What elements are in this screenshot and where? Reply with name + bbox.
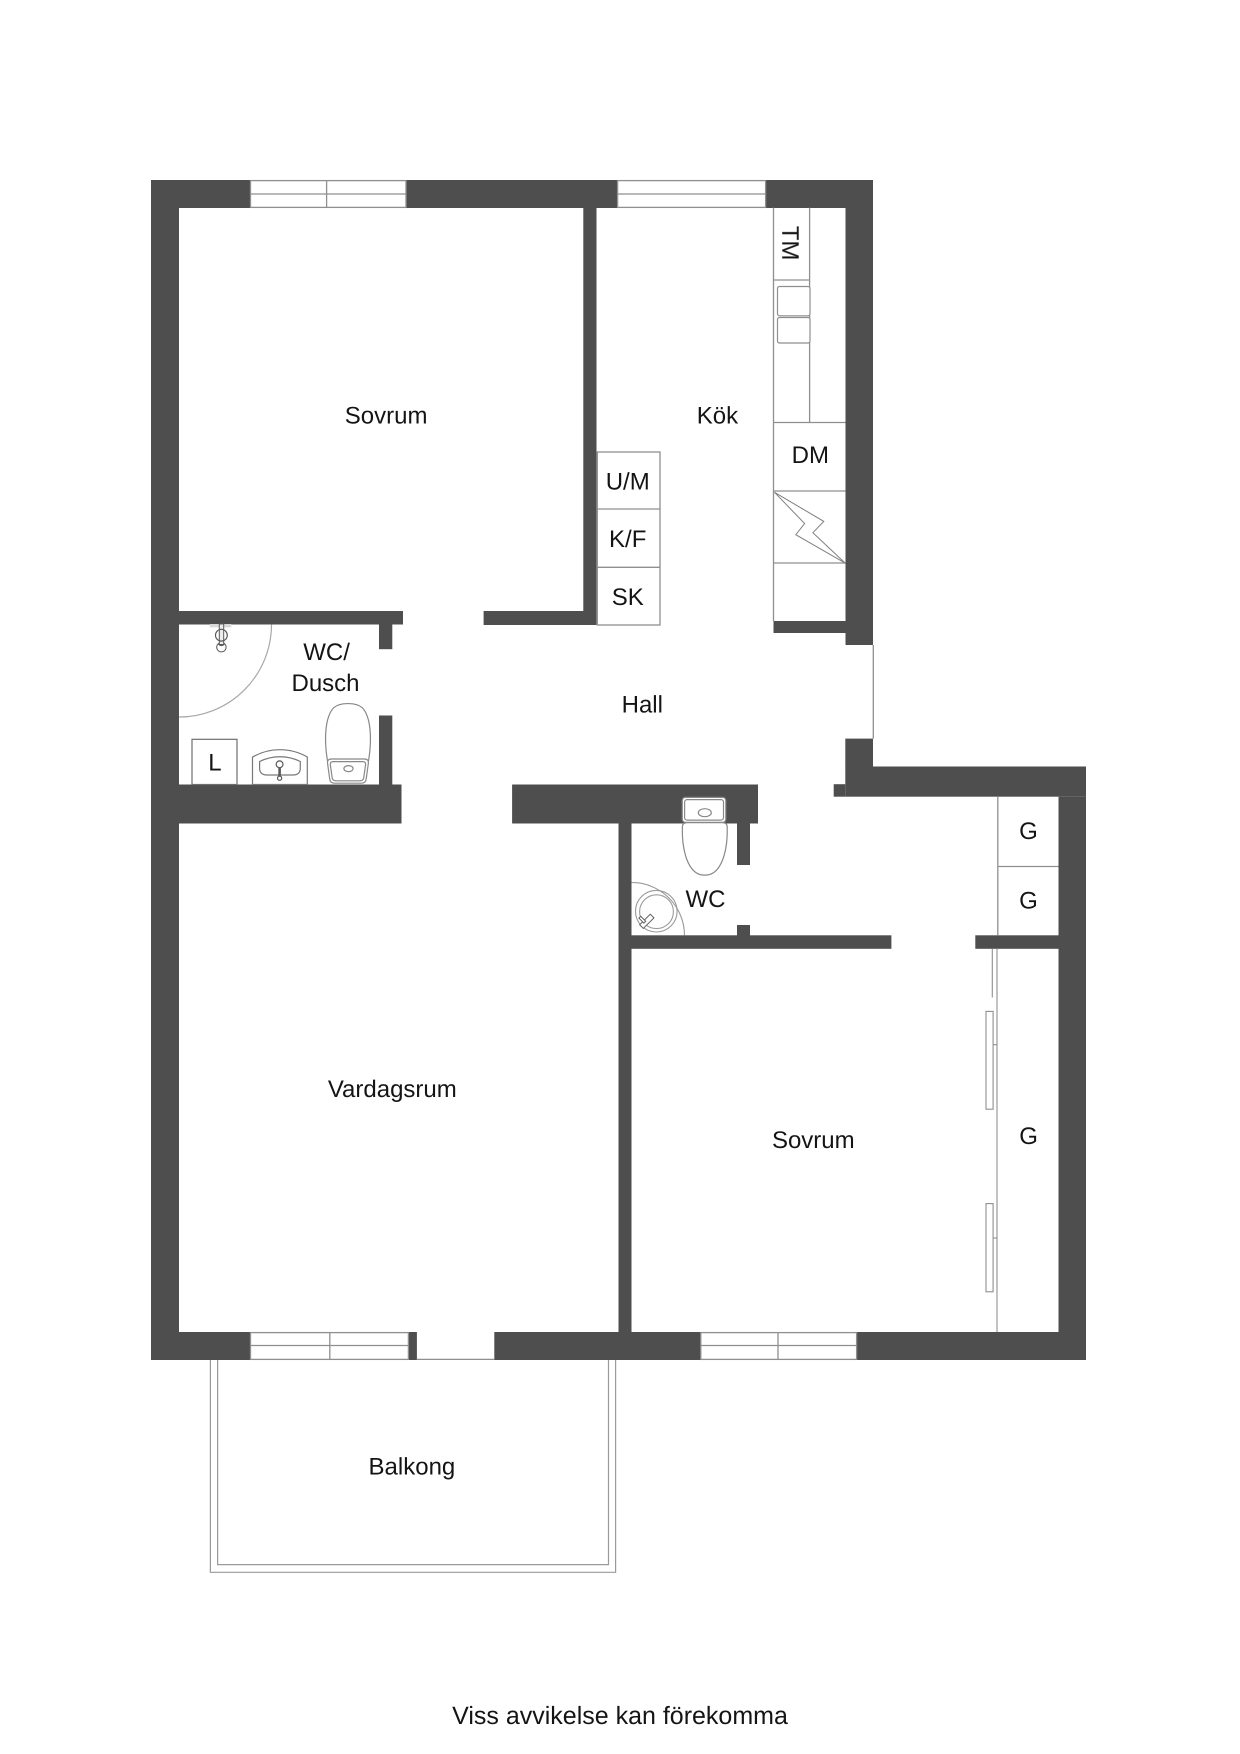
svg-text:WC: WC — [686, 886, 726, 913]
svg-text:L: L — [208, 750, 221, 777]
svg-text:SK: SK — [612, 584, 644, 611]
svg-text:Hall: Hall — [622, 692, 663, 719]
svg-text:TM: TM — [776, 226, 803, 261]
svg-text:DM: DM — [792, 442, 829, 469]
svg-text:G: G — [1019, 818, 1038, 845]
svg-text:Kök: Kök — [697, 403, 739, 430]
svg-text:Vardagsrum: Vardagsrum — [328, 1076, 457, 1103]
svg-text:G: G — [1019, 1123, 1038, 1150]
svg-text:WC/: WC/ — [303, 639, 350, 666]
svg-text:Dusch: Dusch — [291, 670, 359, 697]
svg-text:Viss avvikelse kan förekomma: Viss avvikelse kan förekomma — [452, 1702, 788, 1730]
svg-text:Balkong: Balkong — [369, 1454, 456, 1481]
svg-text:Sovrum: Sovrum — [772, 1127, 855, 1154]
svg-text:K/F: K/F — [609, 526, 646, 553]
svg-text:G: G — [1019, 887, 1038, 914]
svg-text:Sovrum: Sovrum — [345, 402, 428, 429]
svg-text:U/M: U/M — [606, 468, 650, 495]
